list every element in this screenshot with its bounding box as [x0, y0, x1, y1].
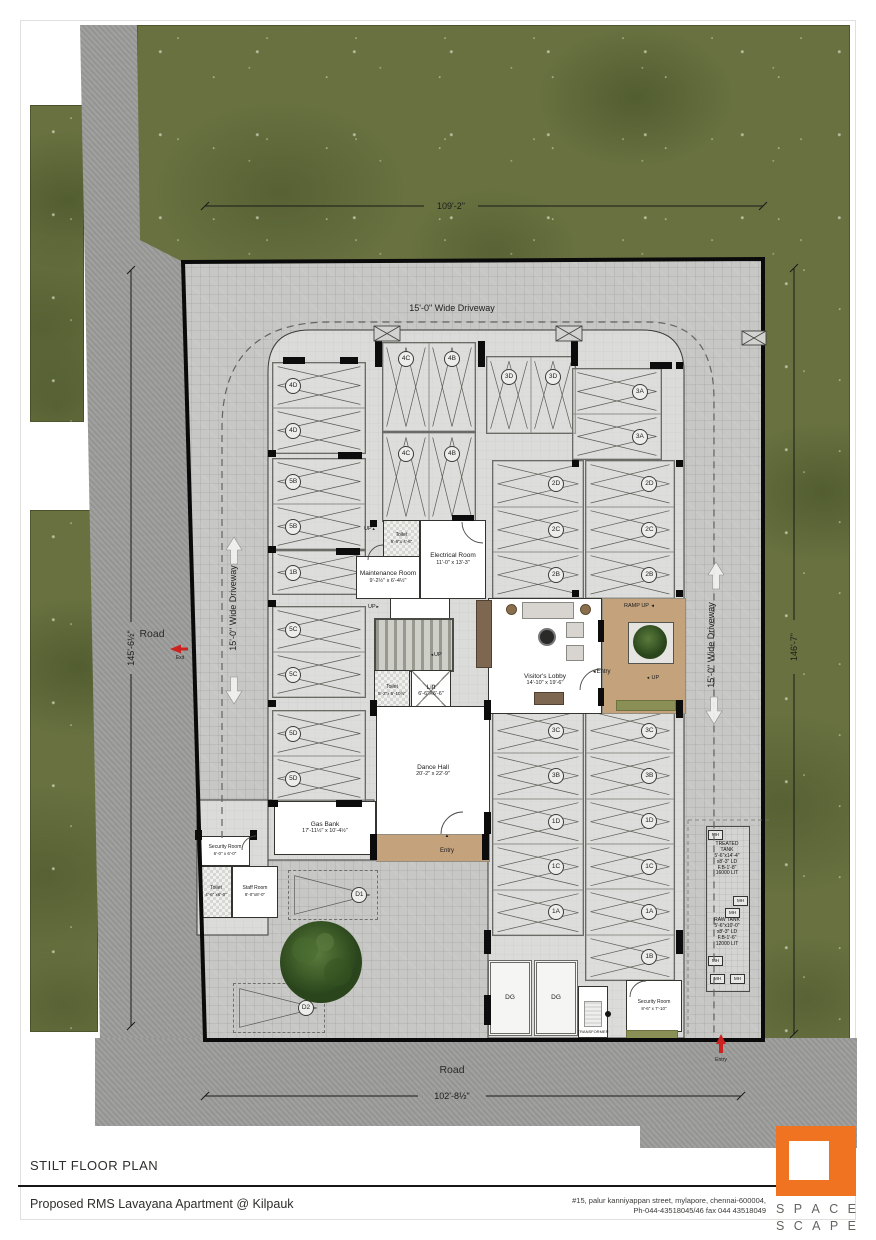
parking-stall-label: 2C [548, 522, 564, 538]
console-table [534, 692, 564, 705]
parking-stall-1b: 1B [586, 935, 674, 980]
wall-pier [338, 452, 362, 459]
parking-stall-1b: 1B [273, 551, 365, 594]
room-dimensions: 4'-6" x6'-0" [205, 892, 226, 897]
parking-group-mid-4c4b-bot: 4C4B [382, 432, 476, 522]
parking-group-mid-3d: 3D3D [486, 356, 576, 434]
driveway-label-left: 15'-0" Wide Driveway [228, 565, 238, 650]
wall-pier [676, 590, 683, 597]
wall-pier [484, 995, 491, 1025]
logo-word-space: SPACE [776, 1202, 856, 1216]
room-stair-landing [390, 598, 450, 620]
parking-stall-label: 3A [632, 429, 648, 445]
parking-stall-label: 1B [641, 949, 657, 965]
parking-stall-label: D2 [298, 1000, 314, 1016]
parking-stall-1d: 1D [493, 799, 583, 844]
wall-pier [336, 800, 362, 807]
room-dimensions: 6'-6"X6'-6" [418, 691, 444, 698]
ramp-up-label: RAMP UP ◄ [624, 603, 655, 609]
wall-pier [484, 700, 491, 720]
room-dg-1: DG [488, 960, 532, 1036]
parking-stall-2d: 2D [493, 461, 583, 507]
room-staircase [374, 618, 454, 672]
room-label: Maintenance Room [360, 570, 416, 577]
wall-pier [283, 357, 305, 364]
room-label: Visitor's Lobby [524, 673, 566, 680]
plant-pot-left [506, 604, 517, 615]
dimension-top: 109'-2" [437, 201, 465, 211]
room-dimensions: 5'-2"x 6'-10½" [378, 691, 406, 696]
treated-tank-label: TREATED TANK 5'-6"x14'-4" x8'-3" LD F.B-… [707, 842, 747, 877]
wall-pier [375, 341, 382, 367]
parking-group-mid-4c4b-top: 4C4B [382, 342, 476, 432]
parking-stall-2c: 2C [586, 507, 674, 553]
wall-pier [268, 700, 276, 707]
logo-letter: P [794, 1202, 802, 1216]
parking-stall-label: 1C [548, 859, 564, 875]
parking-stall-label: 4D [285, 423, 301, 439]
parking-stall-label: 2C [641, 522, 657, 538]
parking-stall-label: 1B [285, 565, 301, 581]
grass-right [763, 258, 850, 1039]
parking-stall-4b: 4B [429, 433, 475, 521]
parking-stall-label: 1D [641, 813, 657, 829]
parking-stall-label: 1D [548, 814, 564, 830]
parking-stall-4d: 4D [273, 363, 365, 408]
manhole-label: MH [730, 974, 745, 984]
logo-letter: E [848, 1219, 856, 1233]
parking-stall-label: 1A [548, 904, 564, 920]
room-label: DG [551, 994, 561, 1001]
arrow-up-icon: ▲ [372, 526, 376, 531]
arrow-right-icon: ► [376, 604, 380, 609]
parking-stall-label: 4C [398, 446, 414, 462]
parking-stall-label: 2D [641, 476, 657, 492]
room-label: Dance Hall [417, 764, 449, 771]
parking-stall-4b: 4B [429, 343, 475, 431]
parking-stall-4c: 4C [383, 433, 429, 521]
wall-pier [650, 362, 672, 369]
road-bottom [95, 1038, 857, 1126]
wall-pier [268, 800, 278, 807]
parking-group-left-5b: 5B5B [272, 458, 366, 550]
parking-stall-3d: 3D [531, 357, 575, 433]
up-label-1: UP▲ [364, 526, 376, 532]
entry-gate-label: Entry [715, 1057, 727, 1063]
room-dimensions: 5'-6"x 4'-6" [391, 539, 412, 544]
parking-stall-3b: 3B [493, 753, 583, 798]
parking-stall-label: 3B [548, 768, 564, 784]
entry-lobby-label: ◄Entry [592, 669, 610, 675]
parking-group-d2: D2 [233, 983, 325, 1033]
parking-stall-label: 4C [398, 351, 414, 367]
wall-pier [676, 362, 683, 369]
wall-pier [676, 700, 683, 718]
grass-left-lower [30, 510, 98, 1032]
wall-pier [676, 460, 683, 467]
logo-letter: C [829, 1202, 838, 1216]
room-dimensions: 17'-11½" x 10'-4½" [302, 828, 348, 835]
dimension-right: 146'-7" [789, 633, 799, 661]
logo-letter: S [776, 1219, 784, 1233]
room-label: Electrical Room [430, 552, 476, 559]
plant-pot-right [580, 604, 591, 615]
room-label: TRANSFORMER [578, 1030, 609, 1035]
parking-stall-d1: D1 [289, 871, 377, 919]
parking-group-d1: D1 [288, 870, 378, 920]
wall-pier [268, 600, 276, 607]
parking-group-left-5c: 5C5C [272, 606, 366, 698]
parking-stall-3b: 3B [586, 753, 674, 798]
dimension-bottom: 102'-8½" [434, 1091, 469, 1101]
parking-stall-3a: 3A [573, 369, 661, 414]
wall-pier [482, 834, 489, 860]
parking-stall-3d: 3D [487, 357, 531, 433]
logo-inner-square [789, 1141, 829, 1180]
parking-stall-label: 4B [444, 351, 460, 367]
parking-stall-label: 2B [548, 567, 564, 583]
room-dimensions: 9'-2½" x 6'-4½" [370, 578, 407, 585]
logo-letter: A [812, 1219, 820, 1233]
parking-stall-label: 5B [285, 474, 301, 490]
logo-letter: P [830, 1219, 838, 1233]
parking-stall-1a: 1A [586, 889, 674, 934]
parking-stall-label: 5D [285, 771, 301, 787]
room-transformer: TRANSFORMER [578, 986, 608, 1038]
sofa [522, 602, 574, 619]
room-gas-bank: Gas Bank17'-11½" x 10'-4½" [274, 801, 376, 855]
parking-stall-1d: 1D [586, 799, 674, 844]
parking-group-rcol1-right: 2D2C2B [585, 460, 675, 599]
parking-stall-4d: 4D [273, 408, 365, 453]
parking-stall-2c: 2C [493, 507, 583, 553]
wall-pier [676, 930, 683, 954]
parking-stall-4c: 4C [383, 343, 429, 431]
address-line-1: #15, palur kanniyappan street, mylapore,… [572, 1196, 766, 1206]
firm-address: #15, palur kanniyappan street, mylapore,… [572, 1196, 766, 1216]
wall-pier [598, 620, 604, 642]
wall-pier [484, 812, 491, 834]
parking-stall-label: 2B [641, 567, 657, 583]
room-staff-room: Staff Room8'-0"x8'-0" [232, 866, 278, 918]
parking-stall-label: 3A [632, 384, 648, 400]
parking-stall-label: 3C [548, 723, 564, 739]
plan-title: STILT FLOOR PLAN [30, 1158, 158, 1173]
floor-plan-sheet: 4D4D5B5B1B5C5C5D5D4C4B4C4B3D3D3A3A2D2C2B… [0, 0, 876, 1240]
driveway-label-right: 15'-0" Wide Driveway [706, 602, 716, 687]
up-label-2: UP► [368, 604, 380, 610]
parking-stall-2d: 2D [586, 461, 674, 507]
parking-stall-label: 3C [641, 723, 657, 739]
parking-stall-5d: 5D [273, 711, 365, 756]
parking-stall-5c: 5C [273, 652, 365, 697]
wall-pier [598, 688, 604, 706]
parking-stall-2b: 2B [493, 552, 583, 598]
room-dimensions: 8'-6" x 7'-10" [641, 1006, 666, 1011]
road-label-bottom: Road [439, 1064, 464, 1076]
wall-pier [268, 450, 276, 457]
wall-pier [370, 834, 377, 860]
wall-pier [250, 830, 257, 840]
manhole-label: MH [708, 956, 723, 966]
wall-pier [571, 338, 578, 366]
wall-pier [478, 341, 485, 367]
room-dimensions: 6'-0" x 6'-0" [214, 851, 237, 856]
logo-word-scape: SCAPE [776, 1219, 856, 1233]
arrow-left-icon: ◄ [650, 603, 654, 608]
parking-stall-5d: 5D [273, 756, 365, 801]
armchair-1 [566, 622, 584, 638]
parking-stall-3c: 3C [586, 708, 674, 753]
parking-stall-5c: 5C [273, 607, 365, 652]
room-electrical-room: Electrical Room11'-0" x 13'-3" [420, 520, 486, 599]
wall-pier [268, 546, 276, 553]
spacescape-logo-icon [776, 1126, 856, 1196]
wall-pier [340, 357, 358, 364]
wall-pier [484, 930, 491, 954]
entry-hall-label: ▲Entry [440, 834, 454, 857]
room-dimensions: 8'-0"x8'-0" [245, 892, 265, 897]
room-green-strip-ramp [616, 700, 676, 711]
wall-pier [452, 515, 474, 521]
parking-stall-label: 3D [501, 369, 517, 385]
parking-stall-3c: 3C [493, 708, 583, 753]
room-maintenance-room: Maintenance Room9'-2½" x 6'-4½" [356, 556, 420, 599]
up-label-4: ◄ UP [646, 675, 659, 681]
wall-pier [336, 548, 360, 555]
parking-stall-d2: D2 [234, 984, 324, 1032]
wall-pier [572, 590, 579, 597]
parking-group-left-4d: 4D4D [272, 362, 366, 454]
room-label: DG [505, 994, 515, 1001]
dimension-left: 145'-6½" [126, 630, 136, 665]
manhole-label: MH [725, 908, 740, 918]
logo-letter: S [776, 1202, 784, 1216]
room-security-room-1: Security Room6'-0" x 6'-0" [200, 836, 250, 866]
parking-stall-label: 1A [641, 904, 657, 920]
parking-stall-2b: 2B [586, 552, 674, 598]
address-line-2: Ph-044-43518045/46 fax 044 43518049 [572, 1206, 766, 1216]
parking-stall-1c: 1C [493, 844, 583, 889]
parking-stall-label: 5D [285, 726, 301, 742]
title-rule [18, 1185, 792, 1187]
planter-box [628, 622, 674, 664]
parking-stall-label: 5C [285, 622, 301, 638]
parking-stall-1c: 1C [586, 844, 674, 889]
parking-group-rcol1-left: 2D2C2B [492, 460, 584, 599]
wall-pier [195, 830, 202, 840]
arrow-up-icon: ▲ [440, 834, 454, 839]
exit-label: Exit [176, 655, 184, 661]
logo-letter: A [811, 1202, 819, 1216]
road-label-left: Road [139, 628, 164, 640]
logo-letter: C [794, 1219, 803, 1233]
parking-stall-5b: 5B [273, 459, 365, 504]
raw-tank-label: RAW TANK 5'-6"x10'-0" x8'-3" LD F.B-1'-6… [707, 918, 747, 947]
room-green-strip-gate [626, 1030, 678, 1041]
parking-stall-label: 5B [285, 519, 301, 535]
parking-stall-label: 4D [285, 378, 301, 394]
room-entry-ramp [376, 834, 490, 862]
parking-stall-label: 4B [444, 446, 460, 462]
room-security-room-2: Security Room8'-6" x 7'-10" [626, 980, 682, 1032]
room-label: Lift [427, 684, 436, 691]
up-label-3: ◄UP [430, 652, 442, 658]
manhole-label: MH [710, 974, 725, 984]
grass-left-upper [30, 105, 84, 422]
parking-stall-label: 3B [641, 768, 657, 784]
project-name: Proposed RMS Lavayana Apartment @ Kilpau… [30, 1197, 294, 1211]
driveway-label-top: 15'-0" Wide Driveway [409, 303, 494, 313]
parking-stall-label: 2D [548, 476, 564, 492]
parking-stall-label: D1 [351, 887, 367, 903]
parking-group-left-5d: 5D5D [272, 710, 366, 802]
round-table [538, 628, 556, 646]
logo-letter: E [848, 1202, 856, 1216]
room-toilet-top: Toilet5'-6"x 4'-6" [383, 520, 420, 558]
parking-stall-label: 3D [545, 369, 561, 385]
grass-top [137, 25, 850, 264]
parking-group-right-3a: 3A3A [572, 368, 662, 460]
armchair-2 [566, 645, 584, 661]
room-dimensions: 11'-0" x 13'-3" [436, 560, 469, 567]
manhole-label: MH [733, 896, 748, 906]
room-dg-2: DG [534, 960, 578, 1036]
wall-pier [572, 460, 579, 467]
wall-pier [370, 700, 377, 716]
room-toilet-low: Toilet4'-6" x6'-0" [200, 866, 232, 918]
arrow-left-icon: ◄ [646, 675, 650, 680]
room-dimensions: 14'-10" x 19'-6" [527, 680, 564, 687]
parking-stall-1a: 1A [493, 890, 583, 935]
parking-group-rcol2-left: 3C3B1D1C1A [492, 707, 584, 936]
room-dance-hall: Dance Hall20'-2" x 22'-9" [376, 706, 490, 836]
parking-group-rcol2-right: 3C3B1D1C1A1B [585, 707, 675, 981]
parking-stall-label: 5C [285, 667, 301, 683]
room-lobby-feature-wall [476, 600, 492, 668]
parking-stall-5b: 5B [273, 504, 365, 549]
room-dimensions: 20'-2" x 22'-9" [416, 771, 450, 778]
manhole-label: MH [708, 830, 723, 840]
parking-group-left-1b: 1B [272, 550, 366, 595]
parking-stall-3a: 3A [573, 414, 661, 459]
parking-stall-label: 1C [641, 859, 657, 875]
